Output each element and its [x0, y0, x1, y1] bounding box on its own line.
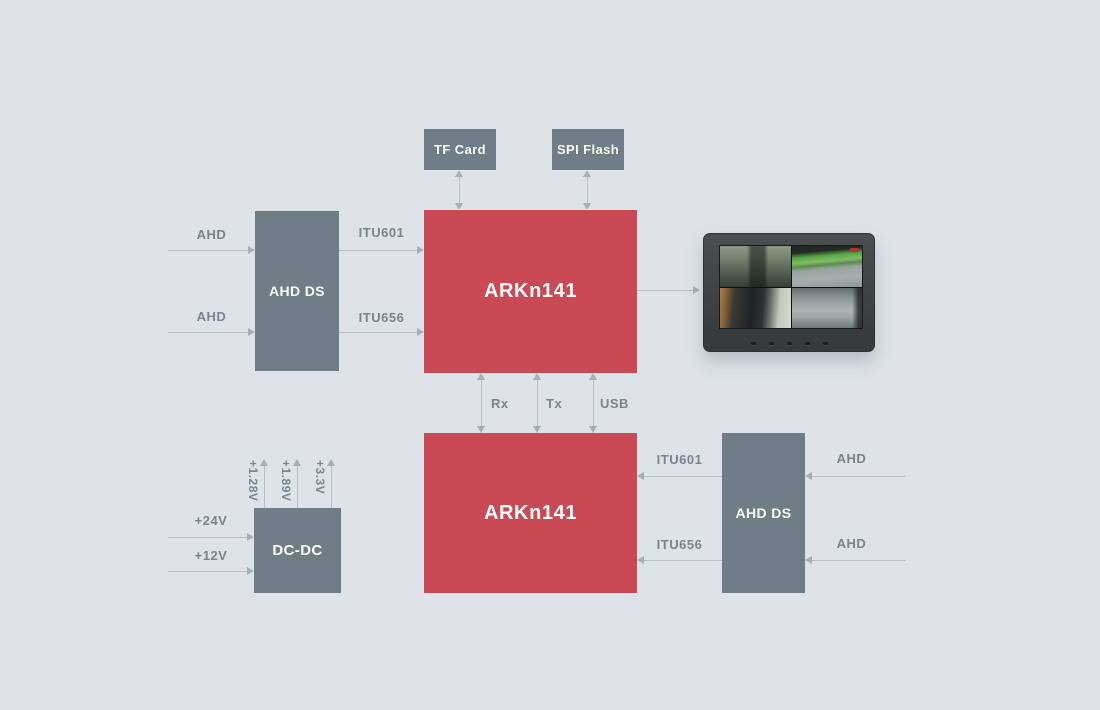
itu601-bottom-label: ITU601	[637, 452, 722, 467]
spi-flash-block: SPI Flash	[552, 129, 624, 170]
arrowhead-right-icon	[417, 328, 424, 336]
arrowhead-down-icon	[455, 203, 463, 210]
monitor-button-icon	[751, 342, 756, 345]
ahd-ds-top-label: AHD DS	[269, 283, 325, 299]
arrowhead-down-icon	[533, 426, 541, 433]
arrowhead-left-icon	[805, 472, 812, 480]
soc-bottom-label: ARKn141	[484, 502, 577, 525]
rx-label: Rx	[491, 396, 509, 411]
arrowhead-up-icon	[477, 373, 485, 380]
arrowhead-up-icon	[583, 170, 591, 177]
ahd-right-label-2: AHD	[805, 536, 898, 551]
monitor-button-icon	[823, 342, 828, 345]
itu601-bottom-arrow	[644, 476, 722, 477]
arrowhead-right-icon	[247, 533, 254, 541]
ahd-right-arrow-2	[812, 560, 905, 561]
itu656-bottom-label: ITU656	[637, 537, 722, 552]
monitor-buttons	[704, 342, 874, 345]
v1-28-arrow	[264, 466, 265, 508]
arrowhead-up-icon	[293, 459, 301, 466]
arrowhead-right-icon	[693, 286, 700, 294]
camera-feed-bus-exterior	[792, 246, 863, 287]
display-output-arrow	[637, 290, 693, 291]
ahd-ds-top-block: AHD DS	[255, 211, 339, 371]
dc-dc-block: DC-DC	[254, 508, 341, 593]
ahd-input-label-1: AHD	[168, 227, 255, 242]
brand-logo-icon	[850, 248, 859, 252]
arrowhead-up-icon	[455, 170, 463, 177]
ahd-input-arrow-1	[168, 250, 248, 251]
v1-28-label: +1.28V	[246, 460, 260, 501]
arrowhead-right-icon	[248, 246, 255, 254]
v3-3-label: +3.3V	[313, 460, 327, 494]
soc-top-label: ARKn141	[484, 280, 577, 303]
tf-card-label: TF Card	[434, 142, 486, 157]
arrowhead-right-icon	[248, 328, 255, 336]
ahd-right-arrow-1	[812, 476, 905, 477]
rx-link-arrow	[481, 380, 482, 426]
monitor-screen	[719, 245, 863, 329]
soc-top-block: ARKn141	[424, 210, 637, 373]
ahd-input-label-2: AHD	[168, 309, 255, 324]
itu601-top-arrow	[339, 250, 417, 251]
monitor-button-icon	[805, 342, 810, 345]
arrowhead-right-icon	[417, 246, 424, 254]
spi-flash-label: SPI Flash	[557, 142, 619, 157]
ahd-input-arrow-2	[168, 332, 248, 333]
arrowhead-down-icon	[583, 203, 591, 210]
spi-flash-bus-arrow	[587, 177, 588, 203]
camera-feed-road-view	[792, 288, 863, 329]
v3-3-arrow	[331, 466, 332, 508]
arrowhead-down-icon	[477, 426, 485, 433]
v12-label: +12V	[168, 548, 254, 563]
v12-arrow	[168, 571, 247, 572]
v1-89-arrow	[297, 466, 298, 508]
arrowhead-right-icon	[247, 567, 254, 575]
v24-arrow	[168, 537, 247, 538]
v24-label: +24V	[168, 513, 254, 528]
arrowhead-up-icon	[533, 373, 541, 380]
tf-card-bus-arrow	[459, 177, 460, 203]
ahd-right-label-1: AHD	[805, 451, 898, 466]
itu601-top-label: ITU601	[339, 225, 424, 240]
ahd-ds-bottom-block: AHD DS	[722, 433, 805, 593]
block-diagram: TF Card SPI Flash AHD DS ARKn141 AHD AHD…	[0, 0, 1100, 710]
quad-view-monitor	[703, 233, 875, 352]
ahd-ds-bottom-label: AHD DS	[735, 505, 791, 521]
arrowhead-up-icon	[589, 373, 597, 380]
usb-link-arrow	[593, 380, 594, 426]
arrowhead-left-icon	[637, 556, 644, 564]
camera-feed-bus-interior-rear	[720, 288, 791, 329]
tf-card-block: TF Card	[424, 129, 496, 170]
usb-label: USB	[600, 396, 629, 411]
arrowhead-left-icon	[805, 556, 812, 564]
arrowhead-up-icon	[260, 459, 268, 466]
monitor-button-icon	[769, 342, 774, 345]
arrowhead-up-icon	[327, 459, 335, 466]
camera-feed-bus-interior-front	[720, 246, 791, 287]
itu656-bottom-arrow	[644, 560, 722, 561]
arrowhead-left-icon	[637, 472, 644, 480]
soc-bottom-block: ARKn141	[424, 433, 637, 593]
dc-dc-label: DC-DC	[272, 542, 322, 559]
monitor-button-icon	[787, 342, 792, 345]
itu656-top-arrow	[339, 332, 417, 333]
tx-label: Tx	[546, 396, 562, 411]
arrowhead-down-icon	[589, 426, 597, 433]
v1-89-label: +1.89V	[279, 460, 293, 501]
tx-link-arrow	[537, 380, 538, 426]
itu656-top-label: ITU656	[339, 310, 424, 325]
